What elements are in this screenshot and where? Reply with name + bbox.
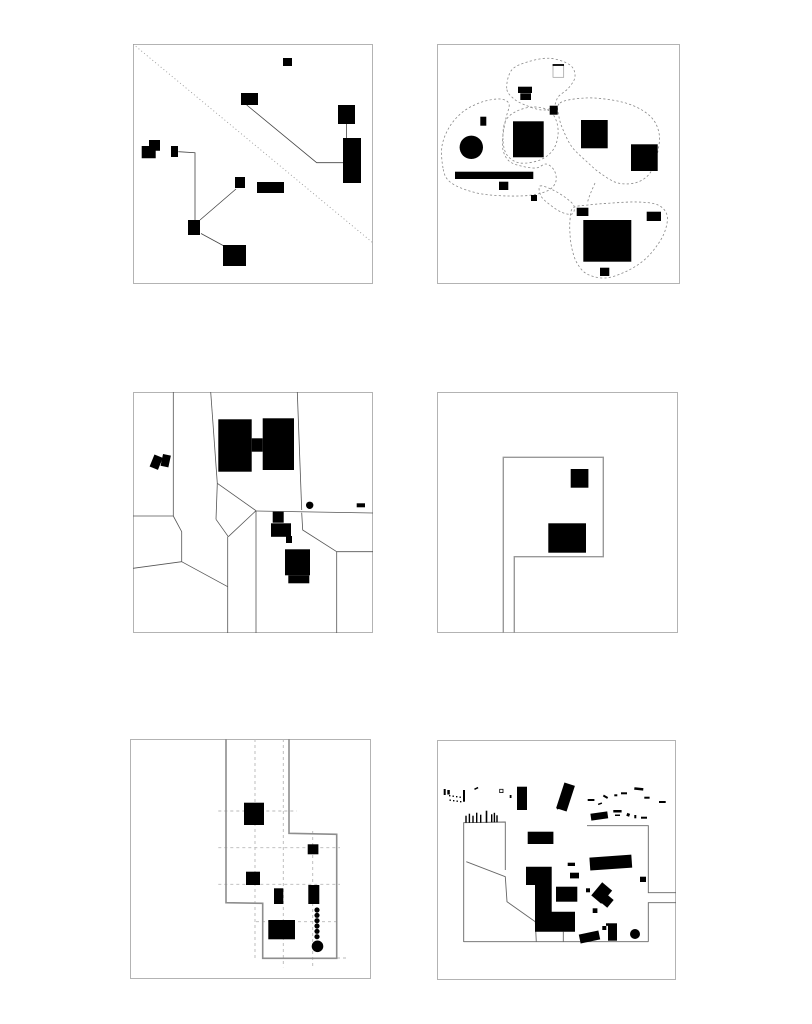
panel-site-diagram-village-plan: [437, 740, 676, 980]
panel-site-diagram-connections: [133, 44, 373, 284]
panel-site-diagram-grid-corridor: [130, 739, 371, 979]
figure-ground-diagram-sheet: [0, 0, 812, 1024]
panel-site-diagram-parcels: [133, 392, 373, 633]
panel-site-diagram-zones: [437, 44, 680, 284]
panel-site-diagram-lshape-lot: [437, 392, 678, 633]
